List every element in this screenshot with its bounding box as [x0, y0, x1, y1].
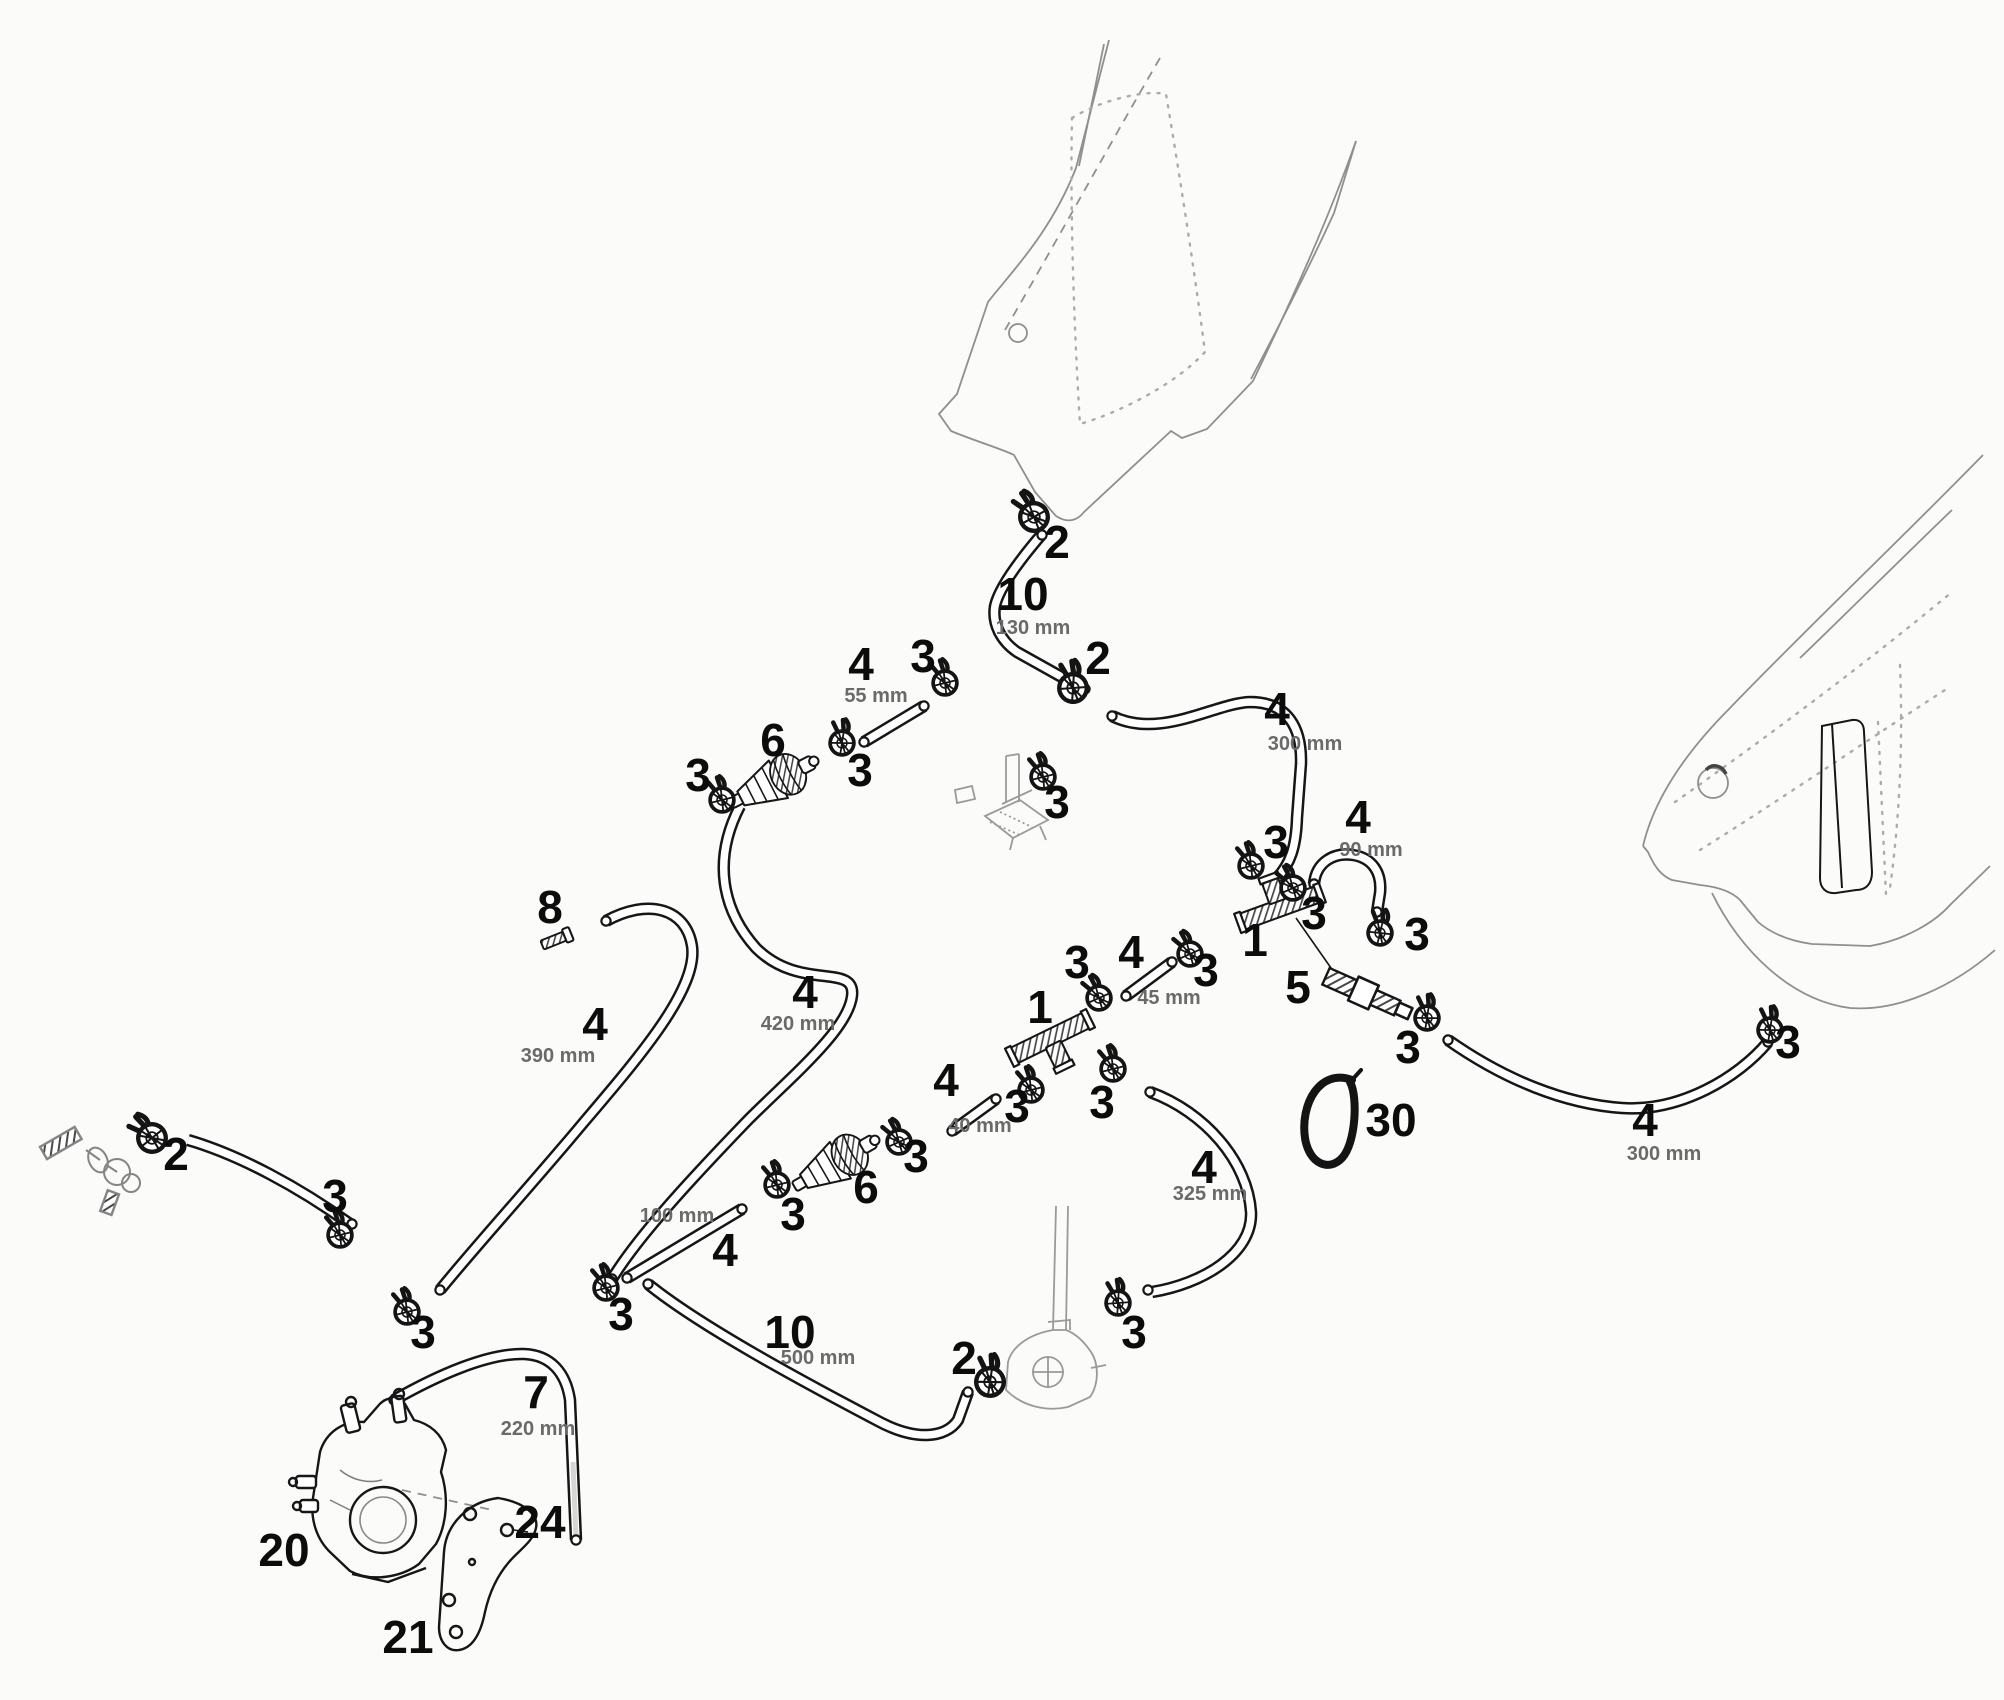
hose-length-label: 500 mm: [781, 1347, 856, 1369]
part-number-label-3: 3: [685, 749, 711, 801]
part-number-label-4: 4: [1632, 1094, 1658, 1146]
hose-clamp-icon: [1237, 842, 1263, 878]
part-number-label-3: 3: [1193, 944, 1219, 996]
part-number-label-3: 3: [1404, 908, 1430, 960]
parts-diagram-page: 210130 mm2455 mm36334300 mm3490 mm331533…: [0, 0, 2004, 1700]
part-number-label-3: 3: [1395, 1021, 1421, 1073]
part-number-label-30: 30: [1365, 1094, 1416, 1146]
part-number-label-3: 3: [1044, 776, 1070, 828]
part-number-label-7: 7: [523, 1366, 549, 1418]
part-number-label-3: 3: [780, 1188, 806, 1240]
band-ring-icon: [1304, 1070, 1361, 1165]
part-number-label-3: 3: [903, 1130, 929, 1182]
hose-7-shading: [573, 1462, 576, 1538]
oil-pump: [289, 1389, 446, 1582]
hose-length-label: 420 mm: [761, 1013, 836, 1035]
part-number-label-4: 4: [792, 966, 818, 1018]
hose-length-label: 55 mm: [844, 685, 907, 707]
rear-fender-panel-outline: [939, 40, 1356, 520]
hose-length-label: 300 mm: [1627, 1143, 1702, 1165]
part-number-label-4: 4: [1345, 791, 1371, 843]
hose-4-300mm-right: [1448, 1040, 1768, 1108]
hose-clamp-icon: [971, 1351, 1010, 1399]
part-number-label-1: 1: [1027, 981, 1053, 1033]
part-number-label-4: 4: [848, 638, 874, 690]
hose-length-label: 90 mm: [1339, 839, 1402, 861]
hose-4-390mm-bore: [440, 909, 692, 1290]
hose-clamp-icon: [708, 776, 734, 812]
part-number-label-3: 3: [1089, 1076, 1115, 1128]
part-number-label-6: 6: [853, 1161, 879, 1213]
part-number-label-4: 4: [1264, 683, 1290, 735]
part-number-label-5: 5: [1285, 961, 1311, 1013]
part-number-label-3: 3: [1263, 816, 1289, 868]
part-number-label-10: 10: [997, 568, 1048, 620]
hose-length-label: 390 mm: [521, 1045, 596, 1067]
hose-length-label: 40 mm: [948, 1115, 1011, 1137]
part-number-label-1: 1: [1242, 914, 1268, 966]
hose-4-55mm-bore: [864, 706, 924, 742]
hose-length-label: 130 mm: [996, 617, 1071, 639]
part-number-label-2: 2: [951, 1332, 977, 1384]
fairing-vent-slot: [1820, 720, 1872, 893]
part-number-label-24: 24: [514, 1496, 566, 1548]
hose-length-label: 325 mm: [1173, 1183, 1248, 1205]
part-number-label-3: 3: [1301, 887, 1327, 939]
part-number-label-2: 2: [163, 1128, 189, 1180]
part-number-label-4: 4: [933, 1054, 959, 1106]
hose-length-label: 45 mm: [1137, 987, 1200, 1009]
part-number-label-3: 3: [608, 1288, 634, 1340]
part-number-label-3: 3: [410, 1306, 436, 1358]
part-number-label-2: 2: [1085, 632, 1111, 684]
carburetor-ghost: [1006, 1206, 1106, 1409]
hose-clamp-icon: [1363, 906, 1399, 948]
hose-clamps-layer: [126, 487, 1788, 1399]
hose-length-label: 220 mm: [501, 1418, 576, 1440]
part-number-label-3: 3: [1064, 936, 1090, 988]
hose-4-390mm: [440, 909, 692, 1290]
part-number-label-8: 8: [537, 881, 563, 933]
hose-length-label: 100 mm: [640, 1205, 715, 1227]
part-number-label-3: 3: [847, 744, 873, 796]
part-number-label-4: 4: [712, 1224, 738, 1276]
part-number-label-21: 21: [382, 1611, 433, 1663]
fuel-tap-sketch: [40, 1127, 140, 1215]
part-number-label-3: 3: [910, 630, 936, 682]
part-number-label-3: 3: [1775, 1016, 1801, 1068]
side-fairing-panel-outline: [1643, 455, 1995, 1008]
part-number-label-4: 4: [582, 998, 608, 1050]
part-number-label-6: 6: [760, 714, 786, 766]
part-number-label-3: 3: [322, 1170, 348, 1222]
part-number-label-2: 2: [1044, 516, 1070, 568]
hose-length-label: 300 mm: [1268, 733, 1343, 755]
part-number-label-4: 4: [1118, 926, 1144, 978]
part-number-label-20: 20: [258, 1524, 309, 1576]
part-number-label-3: 3: [1121, 1306, 1147, 1358]
part-number-label-3: 3: [1004, 1080, 1030, 1132]
parts-diagram: 210130 mm2455 mm36334300 mm3490 mm331533…: [0, 0, 2004, 1700]
inline-fitting-icon: [1321, 964, 1416, 1025]
